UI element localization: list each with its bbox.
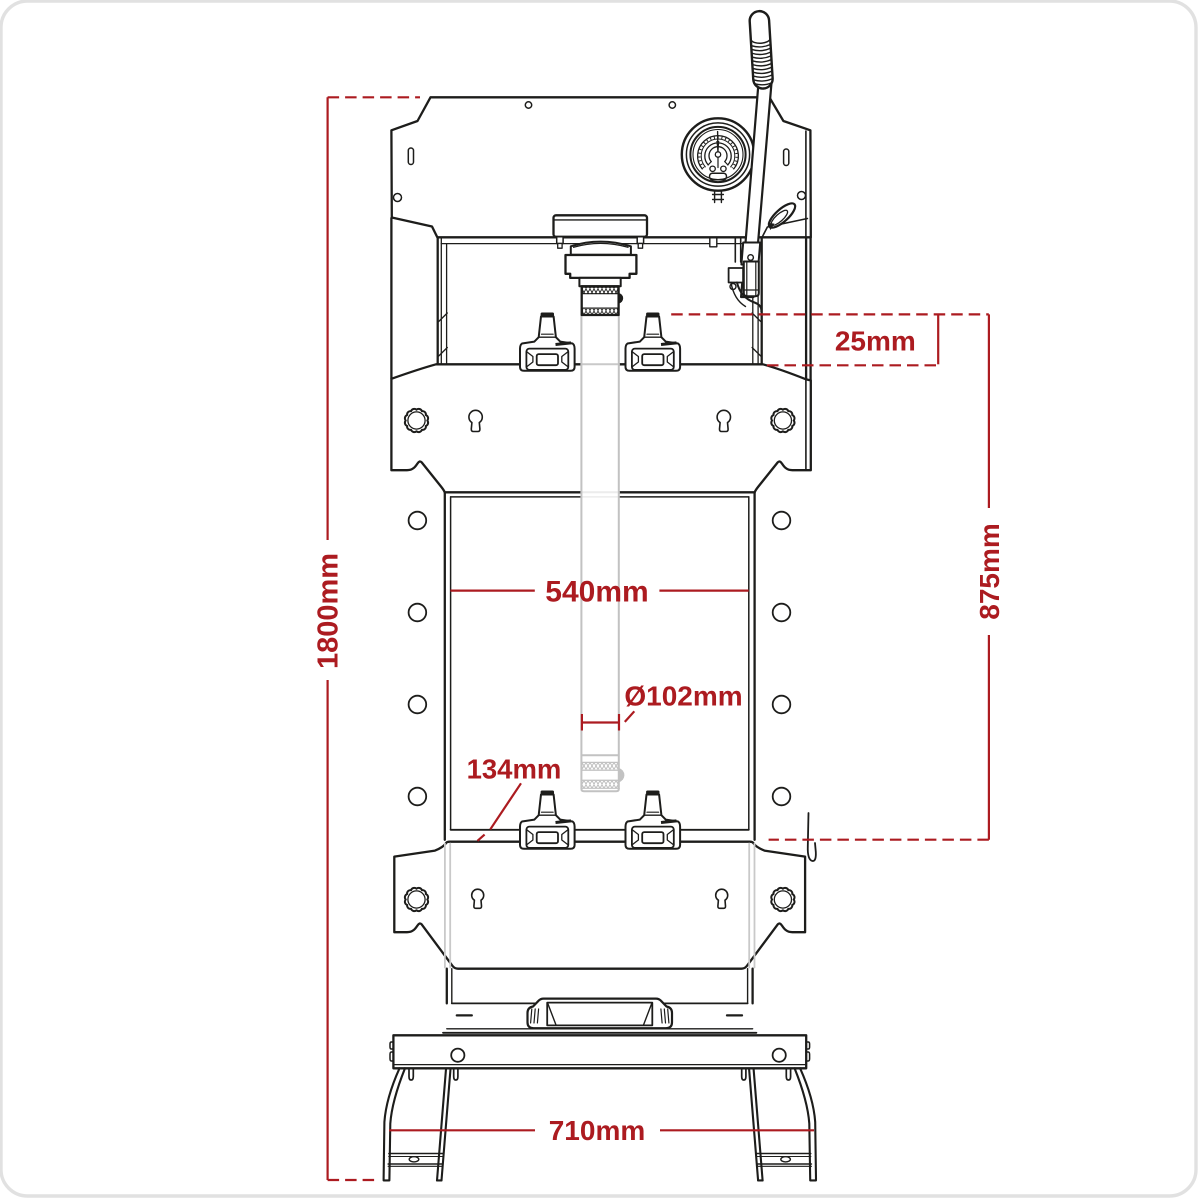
svg-text:540mm: 540mm	[545, 576, 648, 609]
svg-text:Ø102mm: Ø102mm	[624, 681, 742, 712]
svg-text:134mm: 134mm	[467, 753, 562, 784]
svg-text:1800mm: 1800mm	[313, 553, 345, 669]
svg-text:25mm: 25mm	[835, 326, 916, 357]
svg-text:710mm: 710mm	[549, 1115, 646, 1146]
svg-text:875mm: 875mm	[974, 523, 1005, 620]
